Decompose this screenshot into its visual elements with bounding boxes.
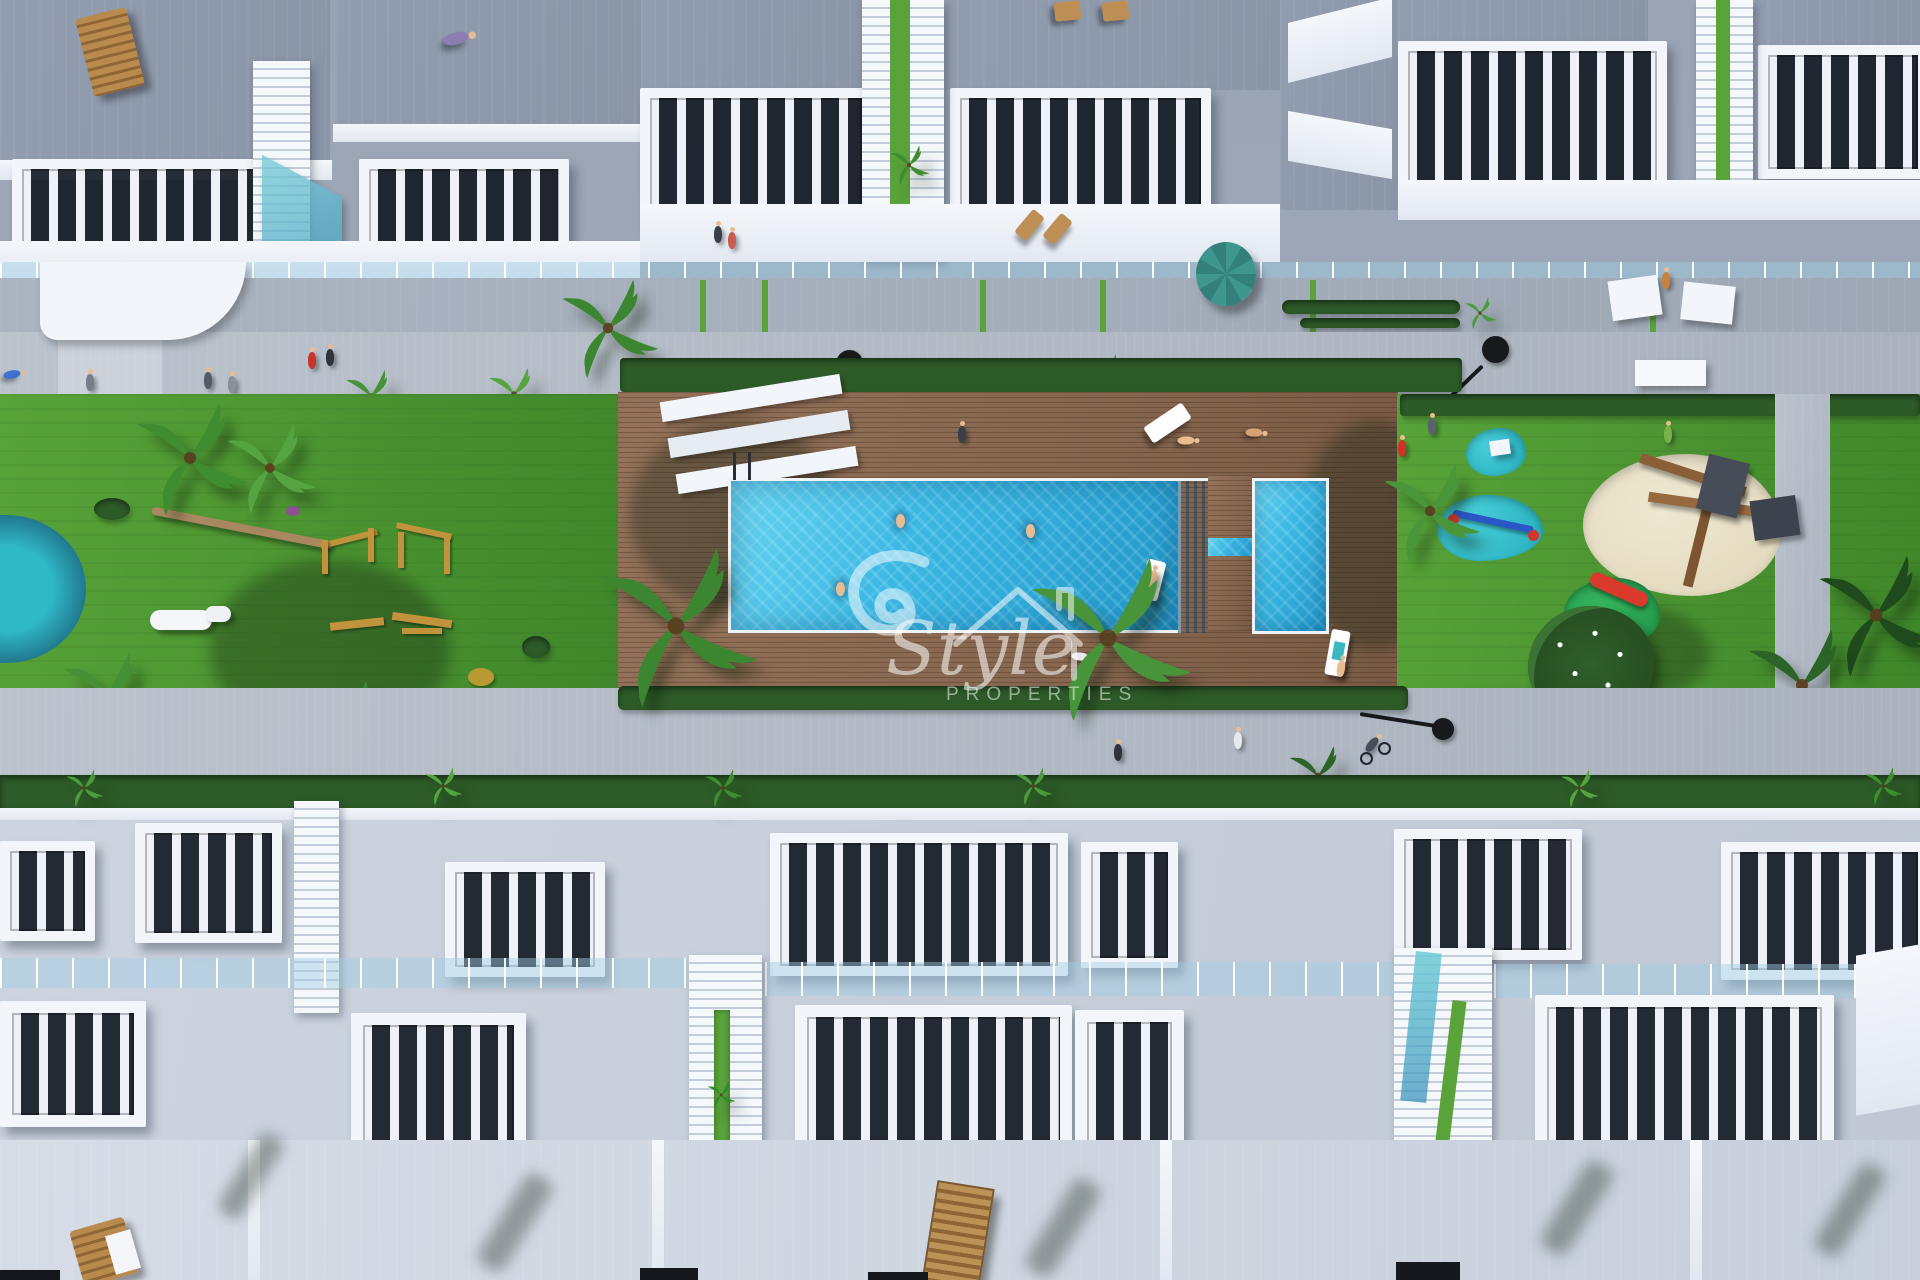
roof-divider (1160, 1140, 1172, 1280)
palm-sprig (700, 768, 746, 808)
person (1428, 418, 1436, 435)
pergola-balcony (0, 1001, 146, 1127)
patio-divider (980, 280, 986, 332)
bush (94, 498, 130, 520)
spring-rider-toy (1489, 439, 1511, 457)
patio-hedge (1300, 318, 1460, 328)
animal-sculpture (205, 606, 231, 622)
pool-channel (1208, 538, 1252, 556)
person-sunbathing (1245, 428, 1262, 437)
rooftop-terrace (1398, 0, 1648, 46)
rooftop-terrace (1754, 0, 1920, 46)
watermark-script-text: Style (886, 606, 1076, 692)
facade-band (1398, 180, 1920, 220)
sloped-wall (1856, 944, 1920, 1115)
deck-hedge (620, 358, 1462, 392)
swimmer (896, 514, 905, 528)
person (1114, 744, 1122, 761)
bicycle-wheel (1360, 752, 1373, 765)
palm-sprig (60, 768, 108, 808)
palm-tree (592, 542, 760, 710)
patio-hedge (1282, 300, 1460, 314)
person (308, 352, 316, 369)
skylight (868, 1272, 928, 1280)
person-with-stroller (86, 374, 94, 391)
pergola-balcony (1394, 829, 1582, 960)
climbing-panel (1749, 495, 1800, 541)
pergola-balcony (1535, 995, 1834, 1164)
crosswalk (58, 332, 162, 394)
outdoor-gym-post (444, 538, 450, 574)
palm-bush (1452, 296, 1508, 330)
flower-patch (286, 506, 300, 516)
stair-green-strip (1716, 0, 1730, 196)
pool-ladder (733, 452, 736, 480)
palm-tree (1378, 452, 1482, 570)
outdoor-gym-post (398, 532, 404, 568)
swimmer (1026, 524, 1035, 538)
seesaw-seat (1528, 530, 1539, 541)
roof-divider (1690, 1140, 1702, 1280)
palm-sprig (1556, 768, 1602, 808)
person (228, 376, 236, 393)
storage-cube (1680, 281, 1736, 324)
kids-pool (1252, 478, 1329, 634)
rooftop-terrace (641, 0, 862, 90)
person (204, 372, 212, 389)
palm-sprig (706, 1080, 736, 1110)
rooftop-terrace (335, 0, 641, 126)
storage-cube (1607, 275, 1662, 322)
roof-parapet (333, 124, 641, 142)
patio-divider (762, 280, 768, 332)
bush (522, 636, 550, 658)
pergola-balcony (0, 841, 95, 941)
lawn-hedge (1400, 394, 1920, 416)
person (728, 232, 736, 249)
palm-tree (888, 144, 930, 186)
palm-tree (222, 420, 318, 516)
street-lamp (1482, 336, 1509, 363)
pergola-balcony (1075, 1010, 1184, 1159)
person (326, 349, 334, 366)
white-canopy (1635, 360, 1706, 386)
watermark-caption-text: PROPERTIES (946, 684, 1138, 705)
skylight (1396, 1262, 1460, 1280)
pergola-balcony (1758, 45, 1920, 179)
glass-balustrade (0, 262, 1920, 278)
palm-sprig (1860, 766, 1906, 806)
palm-sprig (420, 766, 466, 806)
patio-divider (1100, 280, 1106, 332)
skylight (640, 1268, 698, 1280)
watermark: Style PROPERTIES (828, 548, 1148, 733)
pergola-balcony (1081, 842, 1178, 968)
roof-lounger (1102, 0, 1130, 22)
pergola-balcony (770, 833, 1068, 976)
pergola-balcony (135, 823, 282, 943)
person (714, 226, 722, 243)
outdoor-gym-bench (402, 628, 442, 634)
pergola-balcony (1398, 41, 1667, 200)
aerial-render-scene: Style PROPERTIES (0, 0, 1920, 1280)
facade-band (640, 204, 1280, 262)
patio-umbrella (1196, 242, 1256, 306)
glass-balustrade (0, 958, 688, 988)
person (958, 426, 966, 443)
person (1664, 426, 1672, 443)
parapet-band (0, 808, 1920, 820)
pool-ladder (748, 452, 751, 480)
glass-balustrade (765, 962, 1393, 996)
person (1234, 732, 1242, 749)
yellow-shrub (468, 668, 494, 686)
outdoor-gym-post (368, 528, 374, 562)
street-lamp (1432, 718, 1454, 740)
bicycle-wheel (1378, 742, 1391, 755)
palm-sprig (1010, 766, 1056, 806)
person (1662, 272, 1670, 289)
patio-divider (700, 280, 706, 332)
planter-hedge-band (0, 775, 1920, 809)
skylight (0, 1270, 60, 1280)
roof-lounger (1054, 0, 1082, 22)
roof-divider (652, 1140, 664, 1280)
outdoor-gym-post (322, 540, 328, 574)
animal-sculpture (150, 610, 212, 630)
